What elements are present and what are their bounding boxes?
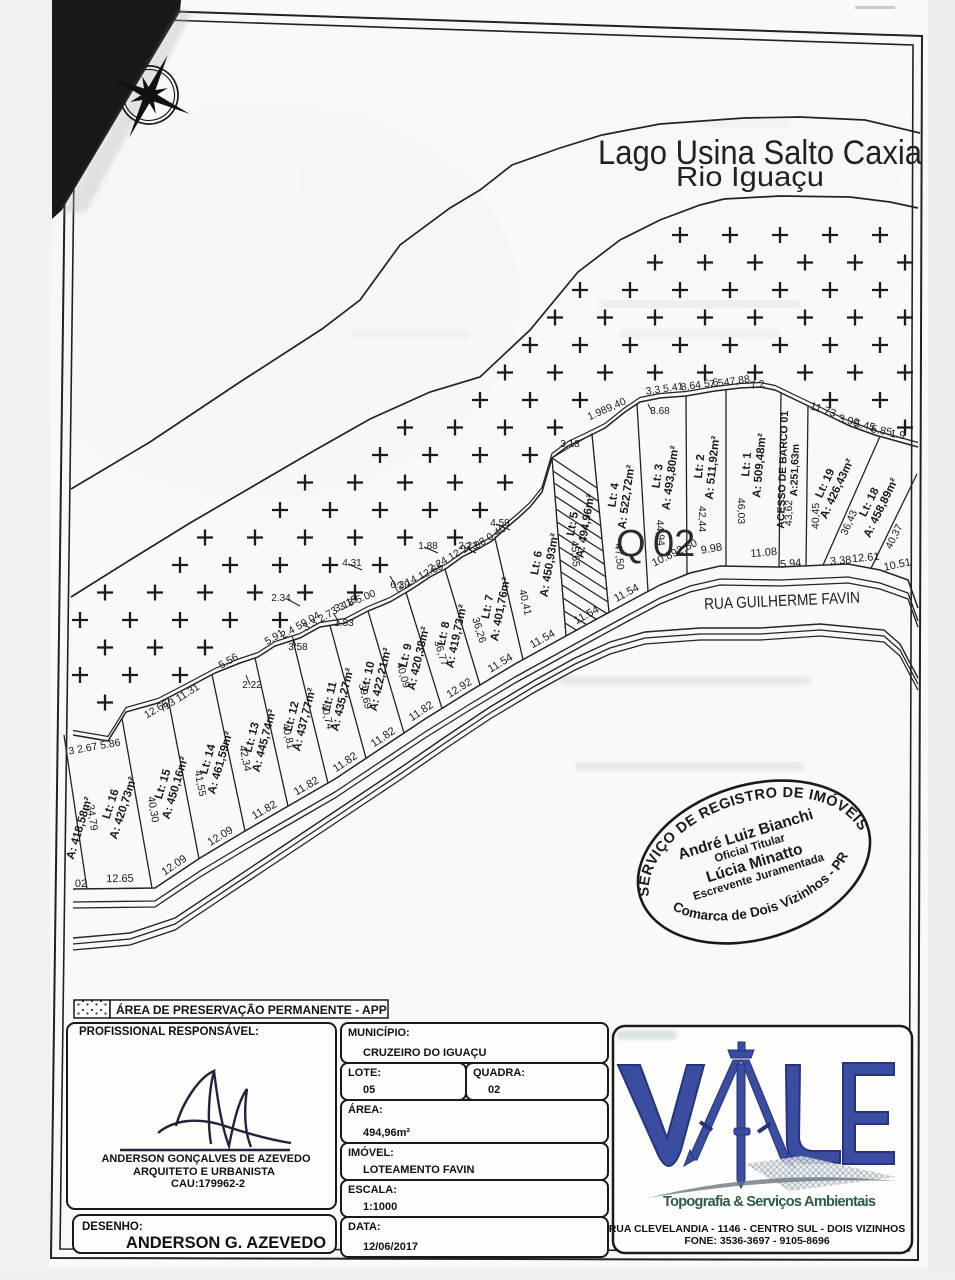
svg-text:11.08: 11.08 bbox=[750, 546, 778, 560]
svg-text:FONE: 3536-3697 - 9105-8696: FONE: 3536-3697 - 9105-8696 bbox=[684, 1235, 829, 1247]
svg-text:46,03: 46,03 bbox=[735, 498, 747, 524]
svg-text:PROFISSIONAL RESPONSÁVEL:: PROFISSIONAL RESPONSÁVEL: bbox=[79, 1025, 259, 1038]
svg-text:ANDERSON GONÇALVES DE AZEVEDO: ANDERSON GONÇALVES DE AZEVEDO bbox=[101, 1153, 310, 1165]
svg-text:DATA:: DATA: bbox=[348, 1221, 381, 1233]
svg-text:Lt: 1: Lt: 1 bbox=[740, 451, 754, 477]
svg-text:CRUZEIRO DO IGUAÇU: CRUZEIRO DO IGUAÇU bbox=[363, 1047, 487, 1059]
svg-text:ÁREA DE PRESERVAÇÃO PERMANENTE: ÁREA DE PRESERVAÇÃO PERMANENTE - APP bbox=[116, 1002, 387, 1017]
svg-text:ESCALA:: ESCALA: bbox=[348, 1184, 397, 1196]
svg-text:LOTEAMENTO FAVIN: LOTEAMENTO FAVIN bbox=[363, 1164, 474, 1176]
svg-text:6.39: 6.39 bbox=[390, 580, 410, 591]
svg-text:4.59: 4.59 bbox=[490, 518, 510, 529]
svg-text:02: 02 bbox=[488, 1084, 500, 1096]
svg-text:1.83: 1.83 bbox=[334, 618, 354, 629]
svg-text:Topografia & Serviços Ambienta: Topografia & Serviços Ambientais bbox=[663, 1194, 876, 1210]
svg-text:12.65: 12.65 bbox=[106, 873, 134, 885]
svg-text:7.2: 7.2 bbox=[750, 378, 766, 392]
svg-text:1:1000: 1:1000 bbox=[363, 1201, 397, 1213]
svg-text:2.23: 2.23 bbox=[458, 541, 478, 552]
svg-text:ANDERSON G. AZEVEDO: ANDERSON G. AZEVEDO bbox=[126, 1234, 326, 1252]
svg-text:45,65: 45,65 bbox=[568, 540, 582, 567]
svg-text:42,44: 42,44 bbox=[696, 506, 708, 532]
svg-text:12.61: 12.61 bbox=[852, 551, 880, 565]
svg-text:3.58: 3.58 bbox=[288, 642, 308, 653]
svg-text:Rio Iguaçu: Rio Iguaçu bbox=[676, 161, 824, 192]
svg-text:494,96m²: 494,96m² bbox=[363, 1127, 410, 1139]
svg-text:IMÓVEL:: IMÓVEL: bbox=[348, 1146, 394, 1159]
svg-text:DESENHO:: DESENHO: bbox=[82, 1221, 143, 1233]
svg-text:43,62: 43,62 bbox=[783, 500, 795, 527]
svg-text:ARQUITETO E URBANISTA: ARQUITETO E URBANISTA bbox=[133, 1166, 275, 1178]
svg-text:44,94: 44,94 bbox=[653, 519, 666, 546]
svg-text:4.31: 4.31 bbox=[342, 558, 362, 569]
svg-text:QUADRA:: QUADRA: bbox=[473, 1067, 525, 1079]
svg-text:02: 02 bbox=[75, 878, 87, 890]
svg-text:MUNICÍPIO:: MUNICÍPIO: bbox=[348, 1026, 410, 1039]
svg-text:1.88: 1.88 bbox=[418, 541, 438, 552]
svg-text:ÁREA:: ÁREA: bbox=[348, 1103, 383, 1116]
svg-text:05: 05 bbox=[363, 1084, 375, 1096]
svg-text:47,50: 47,50 bbox=[612, 543, 626, 570]
svg-text:40,45: 40,45 bbox=[810, 503, 822, 530]
svg-text:3,13: 3,13 bbox=[560, 439, 580, 450]
svg-text:LOTE:: LOTE: bbox=[348, 1067, 381, 1079]
svg-text:5.94: 5.94 bbox=[780, 557, 802, 571]
svg-text:3.68: 3.68 bbox=[650, 406, 670, 417]
svg-text:3.38: 3.38 bbox=[830, 554, 852, 568]
svg-text:RUA CLEVELANDIA - 1146 - CENTR: RUA CLEVELANDIA - 1146 - CENTRO SUL - DO… bbox=[609, 1223, 906, 1235]
svg-text:2.22: 2.22 bbox=[242, 680, 262, 691]
svg-text:Lt: 2: Lt: 2 bbox=[693, 454, 707, 479]
svg-text:A:251,63m: A:251,63m bbox=[788, 444, 802, 497]
svg-text:12/06/2017: 12/06/2017 bbox=[363, 1241, 418, 1253]
svg-text:CAU:179962-2: CAU:179962-2 bbox=[171, 1178, 245, 1190]
svg-text:2.34: 2.34 bbox=[271, 593, 291, 604]
